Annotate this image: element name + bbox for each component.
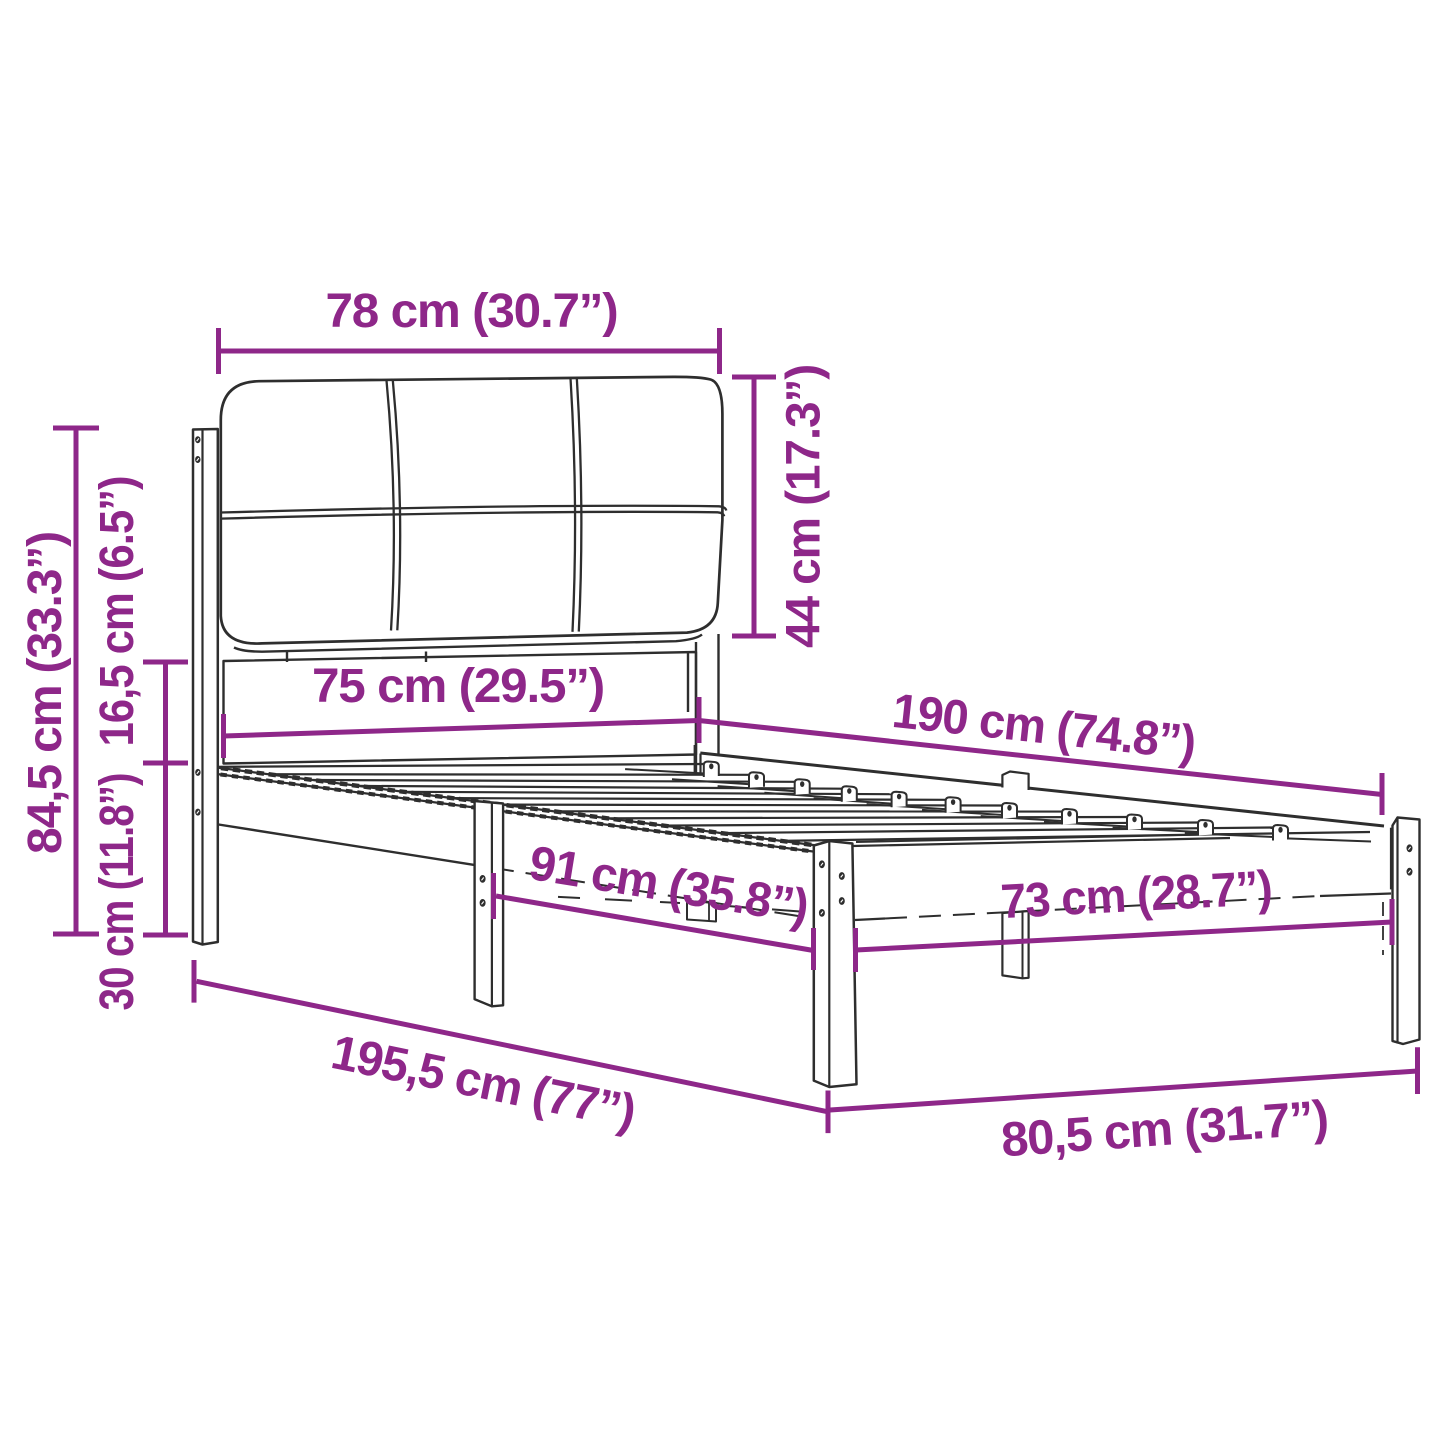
svg-text:44 cm (17.3”): 44 cm (17.3”) bbox=[777, 365, 831, 648]
svg-text:16,5 cm (6.5”): 16,5 cm (6.5”) bbox=[90, 477, 144, 747]
svg-text:30 cm (11.8”): 30 cm (11.8”) bbox=[90, 774, 144, 1011]
svg-text:78 cm (30.7”): 78 cm (30.7”) bbox=[326, 284, 618, 338]
svg-text:75 cm (29.5”): 75 cm (29.5”) bbox=[312, 659, 604, 713]
svg-text:84,5 cm (33.3”): 84,5 cm (33.3”) bbox=[18, 532, 72, 854]
